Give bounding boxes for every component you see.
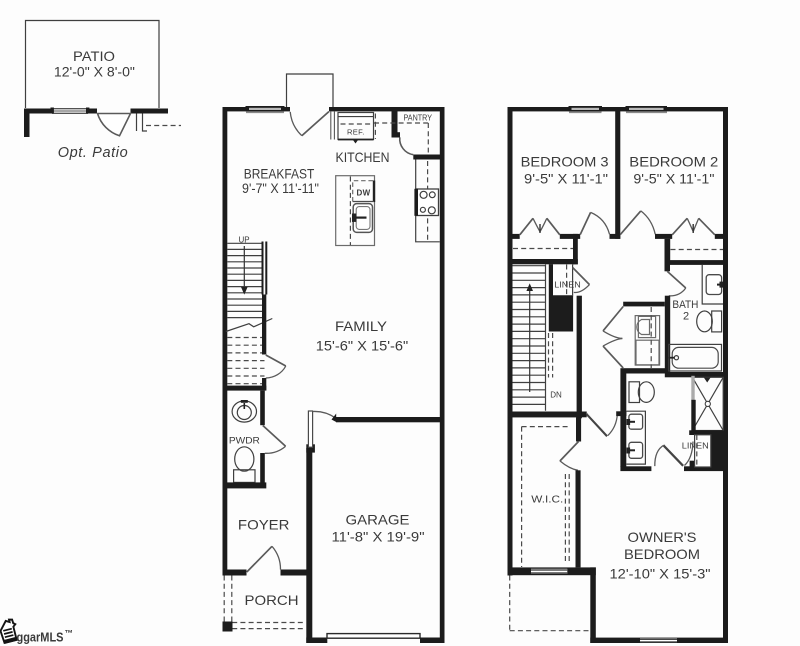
svg-text:LINEN: LINEN: [682, 441, 709, 450]
svg-text:11'-8" X 19'-9": 11'-8" X 19'-9": [332, 529, 425, 545]
svg-text:DW: DW: [357, 189, 371, 198]
svg-text:ggarMLS: ggarMLS: [17, 631, 64, 645]
svg-text:PATIO: PATIO: [73, 48, 115, 64]
svg-text:FAMILY: FAMILY: [335, 318, 388, 334]
svg-text:PANTRY: PANTRY: [404, 114, 433, 123]
svg-text:12'-10" X 15'-3": 12'-10" X 15'-3": [610, 566, 711, 582]
svg-text:DN: DN: [550, 391, 562, 400]
svg-text:GARAGE: GARAGE: [346, 512, 410, 528]
svg-text:BEDROOM 2: BEDROOM 2: [629, 154, 718, 170]
svg-text:KITCHEN: KITCHEN: [336, 149, 390, 165]
svg-text:15'-6" X 15'-6": 15'-6" X 15'-6": [316, 338, 409, 354]
svg-text:BEDROOM 3: BEDROOM 3: [521, 154, 609, 170]
svg-text:PWDR: PWDR: [229, 436, 260, 446]
svg-text:2: 2: [683, 311, 689, 323]
svg-text:LINEN: LINEN: [554, 280, 581, 289]
svg-text:™: ™: [65, 628, 74, 638]
svg-text:BEDROOM: BEDROOM: [624, 546, 700, 562]
svg-text:9'-5" X 11'-1": 9'-5" X 11'-1": [524, 171, 608, 187]
svg-text:9'-7" X 11'-11": 9'-7" X 11'-11": [242, 180, 319, 196]
svg-text:W.I.C.: W.I.C.: [531, 495, 563, 506]
svg-text:9'-5" X 11'-1": 9'-5" X 11'-1": [633, 171, 714, 187]
svg-text:OWNER'S: OWNER'S: [628, 529, 697, 545]
svg-text:12'-0" X 8'-0": 12'-0" X 8'-0": [54, 64, 135, 80]
svg-text:Opt. Patio: Opt. Patio: [58, 145, 128, 161]
svg-text:PORCH: PORCH: [245, 592, 299, 608]
svg-text:REF.: REF.: [347, 128, 365, 137]
svg-text:FOYER: FOYER: [238, 517, 290, 533]
svg-text:BATH: BATH: [672, 299, 698, 311]
